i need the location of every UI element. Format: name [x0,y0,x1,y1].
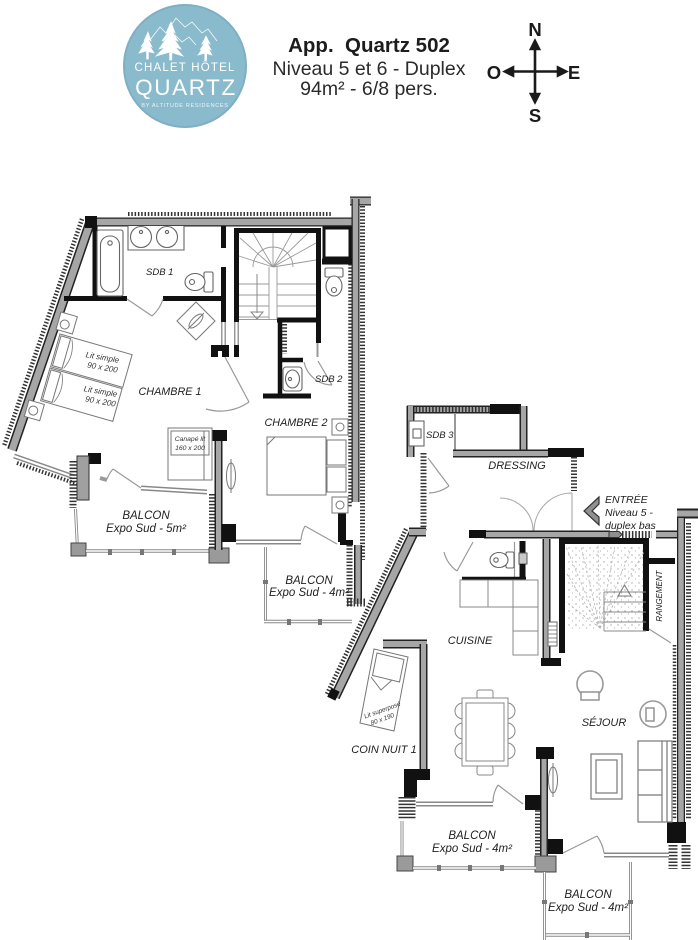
svg-text:SDB 3: SDB 3 [426,430,454,441]
svg-text:QUARTZ: QUARTZ [135,75,237,100]
svg-text:N: N [528,19,541,40]
svg-text:BY ALTITUDE RESIDENCES: BY ALTITUDE RESIDENCES [141,103,228,109]
svg-text:160 x 200: 160 x 200 [175,445,205,452]
svg-text:DRESSING: DRESSING [488,460,546,472]
svg-text:SDB 2: SDB 2 [315,374,343,385]
svg-text:Expo Sud - 4m²: Expo Sud - 4m² [269,587,350,599]
svg-text:RANGEMENT: RANGEMENT [655,569,664,621]
svg-text:E: E [568,62,580,83]
svg-text:Niveau 5 et 6 - Duplex: Niveau 5 et 6 - Duplex [273,58,466,80]
svg-text:BALCON: BALCON [122,510,170,522]
svg-text:Niveau 5 -: Niveau 5 - [605,507,653,519]
svg-text:duplex bas: duplex bas [605,520,657,532]
svg-text:BALCON: BALCON [285,575,333,587]
svg-text:Expo Sud - 4m²: Expo Sud - 4m² [432,843,513,855]
svg-text:94m² - 6/8 pers.: 94m² - 6/8 pers. [300,78,438,100]
svg-text:Expo Sud - 5m²: Expo Sud - 5m² [106,523,187,535]
svg-text:CHALET HÔTEL: CHALET HÔTEL [134,61,235,74]
svg-text:S: S [529,105,541,126]
svg-text:O: O [487,62,501,83]
svg-text:ENTRÉE: ENTRÉE [605,493,649,506]
svg-text:App. Quartz 502: App. Quartz 502 [288,34,450,57]
svg-text:CUISINE: CUISINE [448,635,493,647]
svg-text:Canapé lit: Canapé lit [175,436,207,443]
svg-text:SÉJOUR: SÉJOUR [582,716,627,729]
svg-text:COIN NUIT 1: COIN NUIT 1 [351,744,416,756]
svg-text:SDB 1: SDB 1 [146,267,173,278]
svg-text:Expo Sud - 4m²: Expo Sud - 4m² [548,902,629,914]
svg-text:CHAMBRE 2: CHAMBRE 2 [265,417,328,429]
svg-text:BALCON: BALCON [564,889,612,901]
svg-text:CHAMBRE 1: CHAMBRE 1 [139,386,202,398]
svg-text:BALCON: BALCON [448,830,496,842]
